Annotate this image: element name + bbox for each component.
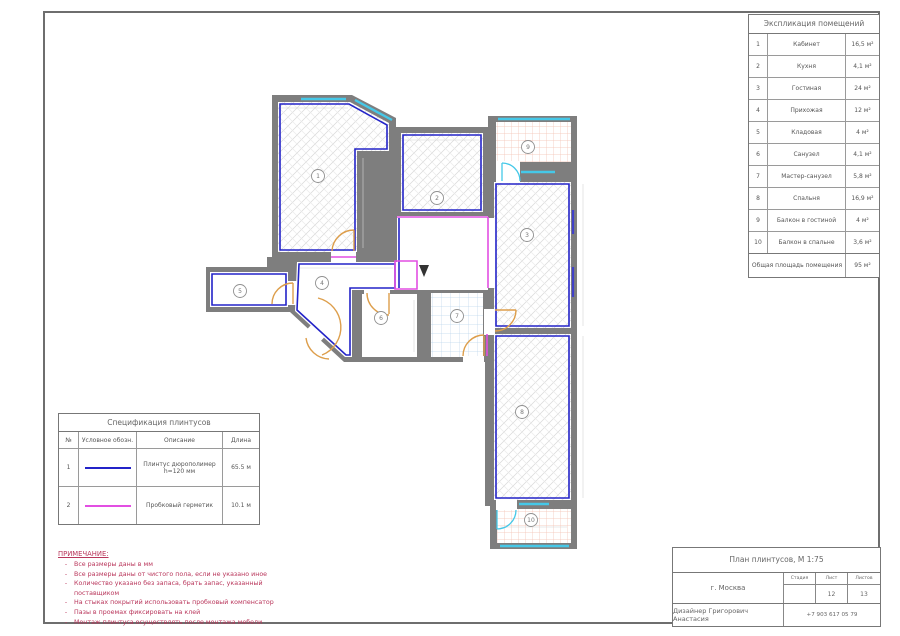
- room-number-cell: 3: [749, 78, 768, 99]
- explication-title: Экспликация помещений: [749, 15, 879, 34]
- explication-row: 3Гостиная24 м²: [749, 78, 879, 100]
- stage-value: [784, 585, 815, 603]
- note-item: -Монтаж плинтуса осуществлять после монт…: [58, 618, 288, 628]
- spec-symbol-cell: [79, 487, 137, 524]
- note-text: Пазы в проемах фиксировать на клей: [74, 608, 200, 618]
- explication-total-label: Общая площадь помещения: [749, 254, 846, 277]
- specification-header: № Условное обозн. Описание Длина: [59, 432, 259, 449]
- specification-row: 2Пробковый герметик10.1 м: [59, 487, 259, 524]
- drawing-title: План плинтусов, М 1:75: [673, 548, 880, 573]
- note-dash: -: [58, 570, 74, 580]
- bedroom-floor: [494, 334, 571, 500]
- explication-row: 8Спальня16,9 м²: [749, 188, 879, 210]
- room-number-cell: 5: [749, 122, 768, 143]
- room-number-text: 5: [238, 288, 242, 295]
- notes-list: -Все размеры даны в мм-Все размеры даны …: [58, 560, 288, 627]
- explication-body: 1Кабинет16,5 м²2Кухня4,1 м²3Гостиная24 м…: [749, 34, 879, 253]
- note-text: На стыках покрытий использовать пробковы…: [74, 598, 274, 608]
- room-area-cell: 5,8 м²: [846, 166, 879, 187]
- spec-col-symbol: Условное обозн.: [79, 432, 137, 448]
- sheet-column: Лист 12: [816, 573, 848, 603]
- spec-length-cell: 10.1 м: [223, 487, 259, 524]
- specification-table: Спецификация плинтусов № Условное обозн.…: [58, 413, 260, 525]
- room-number-cell: 1: [749, 34, 768, 55]
- room-name-cell: Кладовая: [768, 122, 846, 143]
- room-living-floor: [494, 182, 571, 328]
- room-name-cell: Прихожая: [768, 100, 846, 121]
- sheets-header: Листов: [848, 573, 880, 585]
- note-item: -Все размеры даны в мм: [58, 560, 288, 570]
- title-block: План плинтусов, М 1:75 г. Москва Стадия …: [672, 547, 881, 627]
- sheet-header: Лист: [816, 573, 847, 585]
- master-bathroom-floor: [431, 293, 483, 357]
- room-name-cell: Кабинет: [768, 34, 846, 55]
- drawing-sheet: 12345678910 Экспликация помещений 1Кабин…: [0, 0, 900, 636]
- room-name-cell: Балкон в гостиной: [768, 210, 846, 231]
- room-number-text: 6: [379, 315, 383, 322]
- kitchen-zone-floor: [397, 216, 488, 290]
- spec-desc-cell: Пробковый герметик: [137, 487, 223, 524]
- room-number-text: 9: [526, 144, 530, 151]
- spec-col-desc: Описание: [137, 432, 223, 448]
- room-name-cell: Санузел: [768, 144, 846, 165]
- city-label: г. Москва: [673, 573, 784, 603]
- room-number-text: 3: [525, 232, 529, 239]
- note-text: Количество указано без запаса, брать зап…: [74, 579, 288, 598]
- room-area-cell: 16,9 м²: [846, 188, 879, 209]
- room-number-cell: 10: [749, 232, 768, 253]
- spec-num-cell: 2: [59, 487, 79, 524]
- spec-symbol-cell: [79, 449, 137, 486]
- room-name-cell: Кухня: [768, 56, 846, 77]
- explication-total-row: Общая площадь помещения 95 м²: [749, 253, 879, 277]
- room-number-text: 1: [316, 173, 320, 180]
- note-item: -Все размеры даны от чистого пола, если …: [58, 570, 288, 580]
- phone-label: +7 903 617 05 79: [784, 604, 880, 626]
- room-number-text: 8: [520, 409, 524, 416]
- room-area-cell: 24 м²: [846, 78, 879, 99]
- stage-header: Стадия: [784, 573, 815, 585]
- spec-length-cell: 65.5 м: [223, 449, 259, 486]
- room-number-cell: 9: [749, 210, 768, 231]
- swatch-line: [85, 505, 131, 507]
- sheets-column: Листов 13: [848, 573, 880, 603]
- room-area-cell: 12 м²: [846, 100, 879, 121]
- explication-row: 5Кладовая4 м²: [749, 122, 879, 144]
- room-area-cell: 16,5 м²: [846, 34, 879, 55]
- room-number-text: 7: [455, 313, 459, 320]
- explication-row: 6Санузел4,1 м²: [749, 144, 879, 166]
- room-number-cell: 2: [749, 56, 768, 77]
- notes-block: ПРИМЕЧАНИЕ: -Все размеры даны в мм-Все р…: [58, 550, 288, 627]
- room-name-cell: Гостиная: [768, 78, 846, 99]
- note-dash: -: [58, 608, 74, 618]
- room-number-cell: 7: [749, 166, 768, 187]
- specification-title: Спецификация плинтусов: [59, 414, 259, 432]
- explication-row: 4Прихожая12 м²: [749, 100, 879, 122]
- note-text: Все размеры даны в мм: [74, 560, 153, 570]
- note-item: -Пазы в проемах фиксировать на клей: [58, 608, 288, 618]
- sheets-value: 13: [848, 585, 880, 603]
- note-item: -На стыках покрытий использовать пробков…: [58, 598, 288, 608]
- spec-col-num: №: [59, 432, 79, 448]
- explication-row: 1Кабинет16,5 м²: [749, 34, 879, 56]
- explication-row: 9Балкон в гостиной4 м²: [749, 210, 879, 232]
- storage-floor: [210, 272, 288, 307]
- room-number-cell: 8: [749, 188, 768, 209]
- room-name-cell: Мастер-санузел: [768, 166, 846, 187]
- room-name-cell: Балкон в спальне: [768, 232, 846, 253]
- room-number-text: 10: [527, 517, 535, 524]
- explication-row: 10Балкон в спальне3,6 м²: [749, 232, 879, 253]
- note-item: -Количество указано без запаса, брать за…: [58, 579, 288, 598]
- room-number-text: 2: [435, 195, 439, 202]
- room-name-cell: Спальня: [768, 188, 846, 209]
- explication-row: 7Мастер-санузел5,8 м²: [749, 166, 879, 188]
- note-text: Все размеры даны от чистого пола, если н…: [74, 570, 267, 580]
- room-area-cell: 4 м²: [846, 122, 879, 143]
- room-area-cell: 4,1 м²: [846, 144, 879, 165]
- room-number-text: 4: [320, 280, 324, 287]
- spec-desc-cell: Плинтус дюрополимер h=120 мм: [137, 449, 223, 486]
- note-dash: -: [58, 618, 74, 628]
- spec-col-length: Длина: [223, 432, 259, 448]
- sheet-value: 12: [816, 585, 847, 603]
- notes-title: ПРИМЕЧАНИЕ:: [58, 550, 288, 558]
- room-area-cell: 4 м²: [846, 210, 879, 231]
- room-area-cell: 4,1 м²: [846, 56, 879, 77]
- stage-column: Стадия: [784, 573, 816, 603]
- specification-row: 1Плинтус дюрополимер h=120 мм65.5 м: [59, 449, 259, 487]
- explication-table: Экспликация помещений 1Кабинет16,5 м²2Ку…: [748, 14, 880, 278]
- specification-body: 1Плинтус дюрополимер h=120 мм65.5 м2Проб…: [59, 449, 259, 524]
- balcony-living-floor: [496, 122, 571, 162]
- note-dash: -: [58, 579, 74, 598]
- note-dash: -: [58, 598, 74, 608]
- swatch-line: [85, 467, 131, 469]
- room-number-cell: 4: [749, 100, 768, 121]
- note-dash: -: [58, 560, 74, 570]
- room-number-cell: 6: [749, 144, 768, 165]
- room-area-cell: 3,6 м²: [846, 232, 879, 253]
- explication-total-value: 95 м²: [846, 254, 879, 277]
- explication-row: 2Кухня4,1 м²: [749, 56, 879, 78]
- designer-label: Дизайнер Григорович Анастасия: [673, 604, 784, 626]
- spec-num-cell: 1: [59, 449, 79, 486]
- note-text: Монтаж плинтуса осуществлять после монта…: [74, 618, 262, 628]
